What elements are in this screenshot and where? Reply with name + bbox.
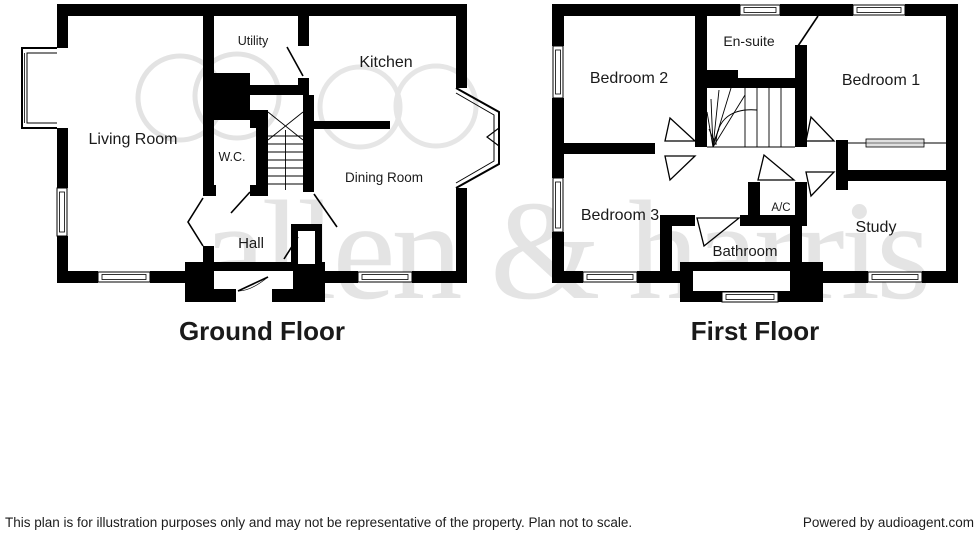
- bathroom-right-wall: [790, 226, 802, 271]
- bedroom2-wall: [695, 16, 707, 70]
- first-floor-title: First Floor: [691, 316, 820, 346]
- window: [57, 188, 67, 236]
- ac-label: A/C: [771, 202, 790, 214]
- ensuite-door: [798, 16, 818, 46]
- study-label: Study: [856, 219, 897, 236]
- disclaimer-text: This plan is for illustration purposes o…: [5, 515, 632, 530]
- bathroom-label: Bathroom: [712, 243, 777, 260]
- window: [868, 272, 922, 282]
- bedroom2-door: [665, 118, 695, 141]
- study-top-wall: [848, 170, 946, 181]
- window: [853, 5, 905, 15]
- bedroom1-wardrobe: [848, 139, 946, 147]
- utility-label: Utility: [238, 34, 269, 48]
- hall-label: Hall: [238, 235, 264, 252]
- ensuite-label: En-suite: [723, 33, 775, 49]
- stair-wall-ff: [795, 85, 807, 147]
- dining-room-label: Dining Room: [345, 170, 423, 185]
- bedroom-divider: [552, 143, 655, 154]
- wc-wall: [256, 128, 268, 186]
- bedroom1-label: Bedroom 1: [842, 72, 920, 89]
- ground-floor-title: Ground Floor: [179, 316, 345, 346]
- opening-zigzag: [487, 128, 499, 146]
- utility-wall: [298, 16, 309, 46]
- kitchen-dining-divider: [313, 121, 390, 129]
- ac-right-wall: [795, 182, 807, 226]
- kitchen-label: Kitchen: [359, 54, 412, 71]
- landing-pier: [836, 140, 848, 190]
- window: [722, 292, 778, 302]
- stair-wall: [303, 95, 314, 192]
- wc-label: W.C.: [218, 150, 245, 164]
- footer: This plan is for illustration purposes o…: [0, 508, 980, 540]
- bedroom1-door: [806, 117, 834, 141]
- first-floor-stairs: [707, 88, 795, 147]
- floorplan-page: allen & harris: [0, 0, 980, 540]
- window: [98, 272, 150, 282]
- window: [358, 272, 412, 282]
- ac-left-wall: [748, 182, 760, 226]
- chimney-mass: [205, 73, 250, 120]
- floorplan-canvas: allen & harris: [0, 0, 980, 508]
- window: [740, 5, 780, 15]
- utility-door: [287, 47, 303, 76]
- bay-window-left: [22, 48, 57, 128]
- credit-text: Powered by audioagent.com: [803, 515, 974, 530]
- bedroom2-label: Bedroom 2: [590, 70, 668, 87]
- ensuite-wall: [795, 45, 807, 85]
- bedroom3-label: Bedroom 3: [581, 207, 659, 224]
- window: [583, 272, 637, 282]
- watermark-ring: [320, 67, 400, 147]
- window: [553, 178, 563, 232]
- living-room-label: Living Room: [89, 131, 178, 148]
- window: [553, 46, 563, 98]
- living-room-door: [188, 198, 203, 246]
- ensuite-bottom-wall: [695, 78, 807, 88]
